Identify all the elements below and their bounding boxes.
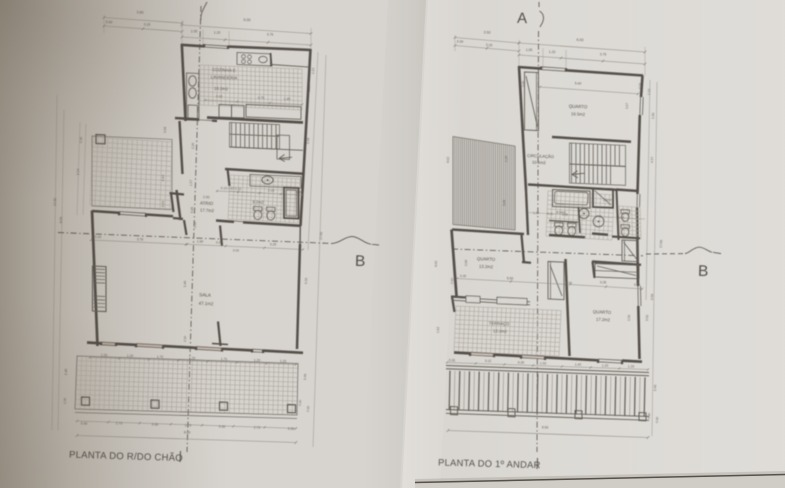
- svg-text:QUARTO: QUARTO: [477, 256, 496, 262]
- svg-text:3.56: 3.56: [627, 315, 631, 322]
- svg-text:3.75: 3.75: [600, 52, 607, 56]
- svg-text:4.37: 4.37: [650, 157, 654, 164]
- svg-text:3.15: 3.15: [485, 359, 492, 363]
- svg-text:2.40: 2.40: [64, 369, 68, 376]
- svg-text:3.58: 3.58: [163, 127, 167, 134]
- svg-text:1.62: 1.62: [436, 327, 440, 334]
- svg-text:1.75: 1.75: [157, 355, 164, 359]
- svg-text:0.30: 0.30: [63, 398, 67, 404]
- svg-text:1.57: 1.57: [189, 180, 193, 187]
- svg-text:3.25: 3.25: [270, 242, 277, 246]
- svg-text:1.20: 1.20: [214, 30, 221, 34]
- svg-text:0.15: 0.15: [547, 212, 553, 216]
- svg-text:2.73: 2.73: [116, 421, 123, 425]
- svg-text:3.15: 3.15: [144, 22, 151, 26]
- svg-text:0.30: 0.30: [457, 39, 464, 43]
- svg-text:1.23: 1.23: [311, 68, 315, 75]
- svg-text:1.20: 1.20: [101, 353, 108, 357]
- svg-text:0.30: 0.30: [219, 424, 226, 428]
- svg-text:9.50: 9.50: [542, 425, 549, 429]
- svg-text:6.00: 6.00: [576, 38, 583, 42]
- svg-text:47.1m2: 47.1m2: [199, 301, 214, 307]
- svg-text:1.20: 1.20: [504, 156, 508, 163]
- svg-text:8.00: 8.00: [59, 217, 63, 224]
- svg-text:1.45: 1.45: [575, 362, 582, 366]
- svg-text:2.20: 2.20: [191, 143, 195, 150]
- svg-text:12.50: 12.50: [53, 198, 57, 207]
- svg-text:0.30: 0.30: [298, 400, 302, 406]
- svg-text:2.40: 2.40: [653, 385, 657, 392]
- svg-text:0.30: 0.30: [95, 235, 102, 239]
- svg-text:9.2m2: 9.2m2: [252, 199, 264, 204]
- svg-text:0.30: 0.30: [521, 81, 525, 87]
- svg-text:A: A: [517, 10, 527, 27]
- svg-text:0.24: 0.24: [216, 240, 222, 244]
- svg-text:1.05: 1.05: [526, 48, 533, 52]
- svg-text:6.39: 6.39: [304, 278, 308, 285]
- svg-text:16.5m2: 16.5m2: [571, 111, 586, 117]
- svg-text:1.20: 1.20: [533, 211, 539, 215]
- svg-text:0.86: 0.86: [190, 207, 194, 214]
- svg-text:1.90: 1.90: [197, 239, 204, 243]
- svg-text:5.40: 5.40: [575, 81, 582, 85]
- svg-text:2.40: 2.40: [303, 374, 307, 381]
- svg-text:5.50: 5.50: [507, 276, 514, 280]
- svg-text:3.08: 3.08: [502, 200, 506, 207]
- svg-text:12.3m2: 12.3m2: [493, 328, 508, 334]
- svg-text:0.30: 0.30: [450, 278, 454, 284]
- svg-text:B: B: [355, 253, 366, 270]
- svg-text:0.30: 0.30: [288, 427, 295, 431]
- svg-text:3.76: 3.76: [137, 237, 144, 241]
- svg-text:0.30: 0.30: [183, 336, 187, 342]
- svg-text:1.20: 1.20: [628, 364, 635, 368]
- svg-text:0.30: 0.30: [306, 406, 310, 412]
- svg-text:6.00: 6.00: [243, 18, 250, 22]
- svg-text:2.88: 2.88: [464, 260, 468, 267]
- svg-text:3.56: 3.56: [645, 315, 649, 322]
- svg-text:0.15: 0.15: [193, 222, 197, 228]
- svg-text:3.50: 3.50: [483, 30, 490, 34]
- svg-text:3.14: 3.14: [76, 169, 80, 176]
- svg-text:1.20: 1.20: [280, 359, 287, 363]
- svg-text:17.00: 17.00: [659, 240, 663, 248]
- svg-text:2.00: 2.00: [203, 195, 210, 199]
- svg-text:QUARTO: QUARTO: [593, 309, 612, 315]
- svg-text:9.80: 9.80: [184, 430, 191, 434]
- svg-text:1.20: 1.20: [549, 50, 556, 54]
- svg-text:3.35: 3.35: [600, 280, 607, 284]
- svg-text:2.73: 2.73: [254, 425, 261, 429]
- svg-text:1.20: 1.20: [189, 356, 196, 360]
- svg-text:COZINHA E: COZINHA E: [212, 67, 235, 73]
- svg-text:TERRAÇO: TERRAÇO: [489, 321, 510, 327]
- svg-text:3.18: 3.18: [216, 94, 223, 98]
- svg-text:0.93: 0.93: [161, 175, 165, 182]
- svg-text:1.23: 1.23: [647, 89, 651, 96]
- svg-text:1.5m2: 1.5m2: [603, 198, 612, 202]
- svg-text:2.73: 2.73: [185, 423, 192, 427]
- svg-text:1.50: 1.50: [540, 361, 547, 365]
- svg-text:0.30: 0.30: [638, 83, 642, 89]
- svg-text:1.25: 1.25: [562, 212, 568, 216]
- svg-text:16.2m2: 16.2m2: [214, 86, 229, 92]
- svg-text:SALA: SALA: [199, 292, 212, 298]
- svg-text:0.30: 0.30: [152, 422, 159, 426]
- svg-text:4.05: 4.05: [434, 261, 438, 268]
- svg-text:3.07: 3.07: [625, 103, 629, 110]
- svg-text:5.40: 5.40: [183, 281, 187, 288]
- svg-text:0.30: 0.30: [634, 283, 640, 287]
- svg-text:1.45: 1.45: [284, 97, 291, 101]
- svg-text:13.2m2: 13.2m2: [479, 264, 494, 270]
- svg-text:0.35: 0.35: [449, 358, 456, 362]
- svg-text:2.16: 2.16: [268, 188, 275, 192]
- svg-text:1.20: 1.20: [254, 358, 261, 362]
- svg-text:17.00: 17.00: [319, 232, 323, 240]
- svg-text:0.35: 0.35: [518, 360, 525, 364]
- svg-text:0.93: 0.93: [161, 201, 165, 208]
- svg-text:1.05: 1.05: [191, 29, 198, 33]
- svg-text:10.5m2: 10.5m2: [532, 160, 547, 166]
- svg-text:1.20: 1.20: [127, 354, 134, 358]
- svg-text:1.20: 1.20: [602, 363, 609, 367]
- svg-text:0.30: 0.30: [460, 274, 466, 278]
- svg-text:1.75: 1.75: [221, 357, 228, 361]
- svg-text:3.15: 3.15: [486, 43, 493, 47]
- svg-text:3.80: 3.80: [136, 10, 143, 14]
- svg-text:B: B: [698, 263, 709, 280]
- svg-text:0.30: 0.30: [81, 421, 88, 425]
- svg-text:0.75: 0.75: [258, 96, 265, 100]
- svg-text:0.30: 0.30: [655, 417, 659, 423]
- svg-text:0.30: 0.30: [106, 20, 113, 24]
- svg-text:17.2m2: 17.2m2: [596, 317, 611, 323]
- svg-text:ATRIO: ATRIO: [200, 201, 214, 207]
- svg-text:17.7m2: 17.7m2: [200, 208, 215, 214]
- svg-text:0.55: 0.55: [233, 248, 239, 252]
- svg-text:3.75: 3.75: [267, 32, 274, 36]
- svg-text:QUARTO: QUARTO: [569, 104, 588, 110]
- svg-text:1.20: 1.20: [651, 113, 655, 120]
- svg-text:4.02: 4.02: [446, 157, 450, 164]
- svg-text:0.30: 0.30: [647, 413, 651, 419]
- svg-text:6.00: 6.00: [650, 294, 654, 301]
- svg-text:0.30: 0.30: [79, 137, 83, 143]
